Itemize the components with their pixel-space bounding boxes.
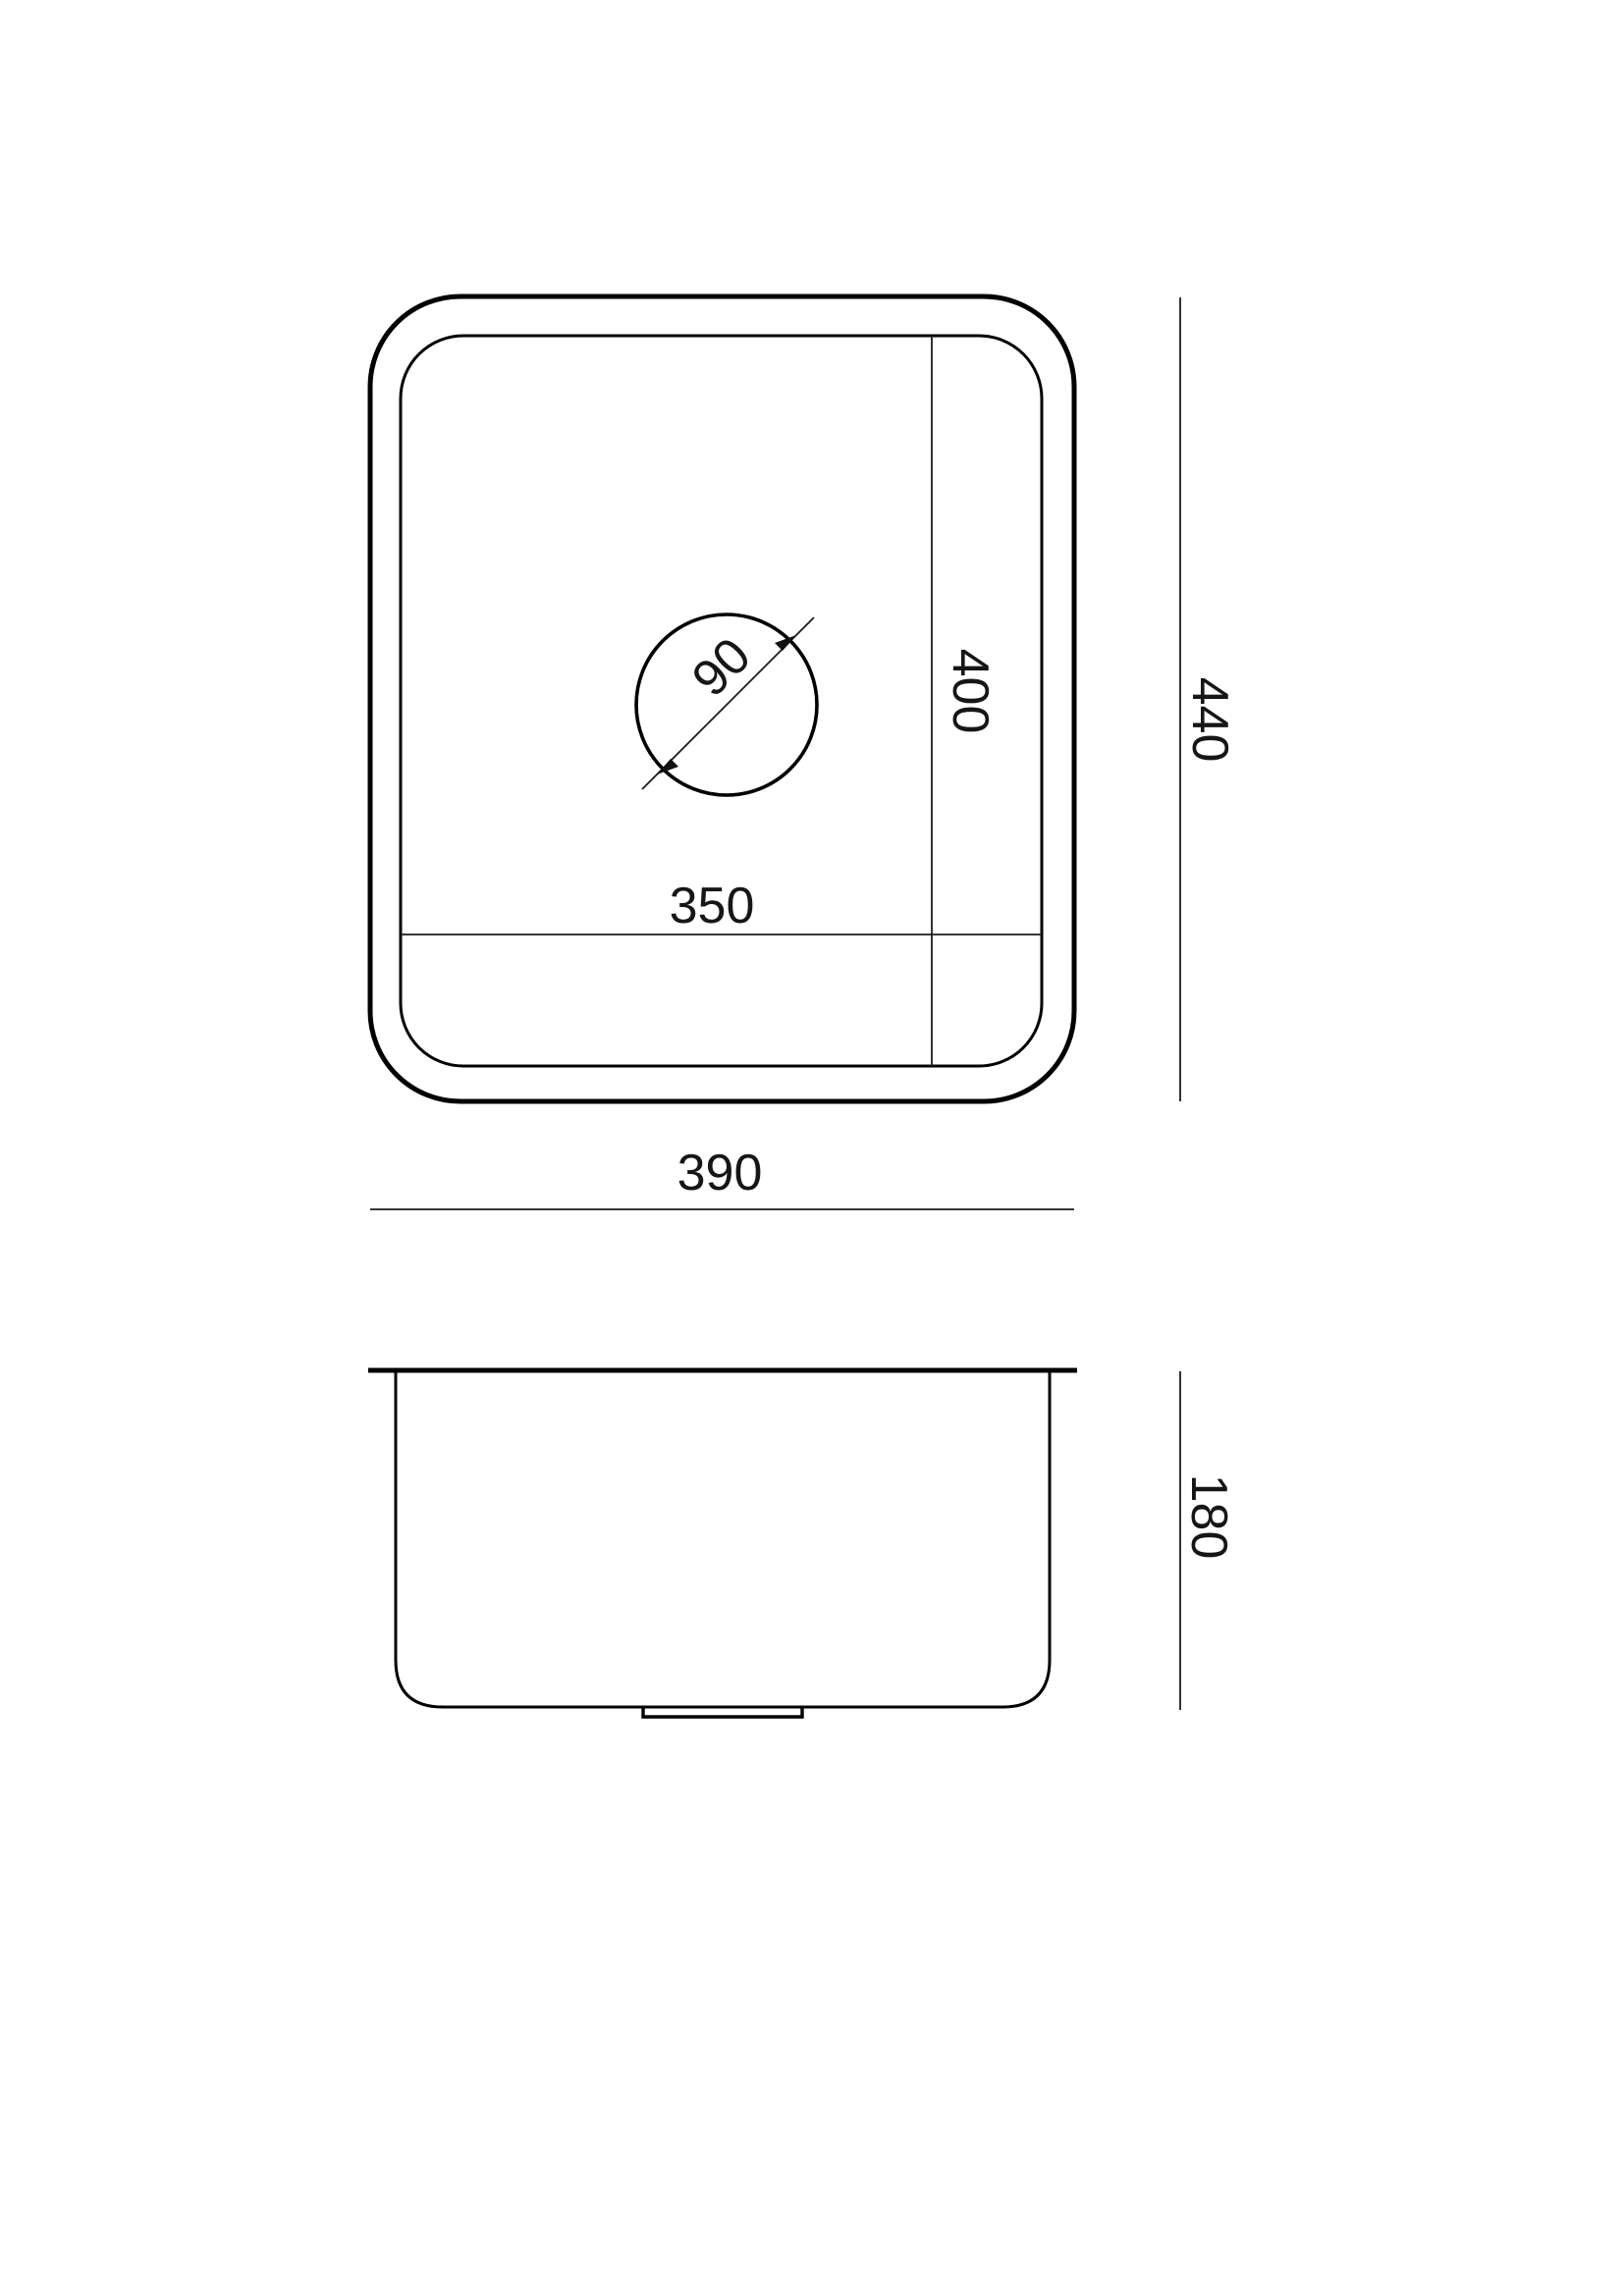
sink-technical-drawing: 90 400 350 440 390 180: [0, 0, 1624, 2296]
bowl-height-label: 180: [1180, 1474, 1237, 1560]
drain-diameter-label: 90: [681, 627, 762, 708]
bowl-width-label: 350: [670, 878, 755, 934]
sink-top-view: 90 400 350 440 390: [370, 296, 1238, 1209]
sink-side-view: 180: [368, 1370, 1237, 1717]
drawing-sheet: 90 400 350 440 390 180: [0, 0, 1624, 2296]
bowl-length-label: 400: [942, 649, 999, 734]
overall-length-label: 440: [1181, 677, 1238, 763]
side-view-bowl-profile: [396, 1370, 1050, 1707]
overall-width-label: 390: [677, 1145, 763, 1201]
